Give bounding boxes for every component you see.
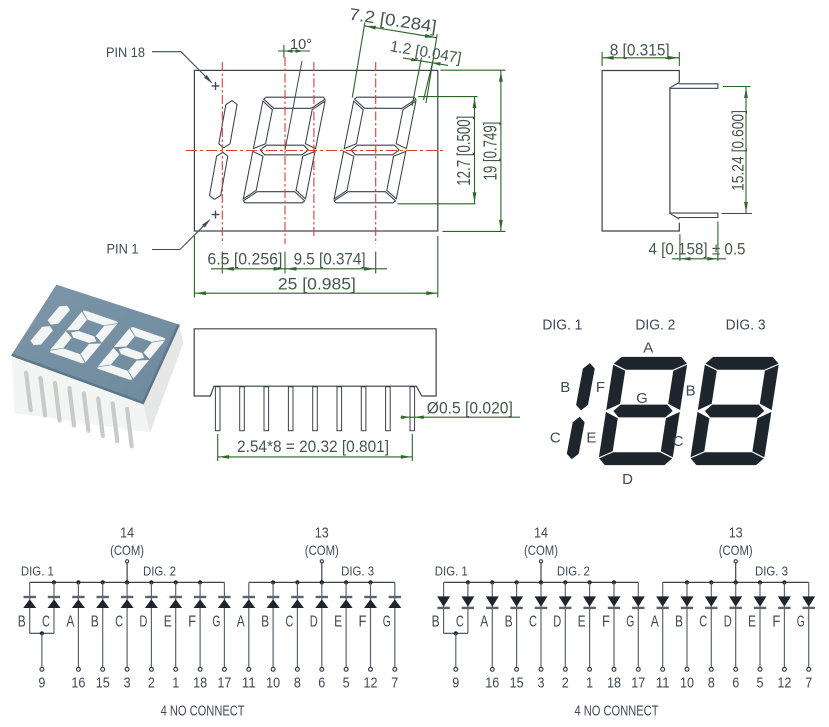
svg-text:11: 11	[656, 675, 670, 692]
svg-text:G: G	[797, 614, 805, 631]
svg-text:2: 2	[148, 675, 155, 692]
svg-text:C: C	[550, 430, 561, 447]
svg-text:6: 6	[732, 675, 739, 692]
svg-text:7: 7	[805, 675, 812, 692]
svg-text:5: 5	[757, 675, 764, 692]
svg-text:14: 14	[120, 526, 134, 542]
svg-text:8: 8	[294, 675, 301, 692]
svg-text:B: B	[18, 614, 26, 631]
svg-text:Ø0.5 [0.020]: Ø0.5 [0.020]	[427, 400, 513, 418]
svg-text:DIG. 1: DIG. 1	[435, 564, 468, 579]
svg-text:E: E	[748, 614, 756, 631]
svg-text:14: 14	[534, 526, 548, 542]
svg-text:17: 17	[217, 675, 231, 692]
svg-text:4 [0.158] ± 0.5: 4 [0.158] ± 0.5	[649, 241, 746, 259]
svg-text:2.54*8 = 20.32 [0.801]: 2.54*8 = 20.32 [0.801]	[237, 438, 389, 456]
svg-text:A: A	[66, 614, 75, 631]
svg-text:F: F	[602, 614, 610, 631]
svg-text:17: 17	[631, 675, 645, 692]
svg-text:7.2 [0.284]: 7.2 [0.284]	[348, 5, 438, 37]
svg-text:18: 18	[607, 675, 621, 692]
svg-text:B: B	[505, 614, 513, 631]
svg-text:3: 3	[124, 675, 131, 692]
svg-text:B: B	[432, 614, 440, 631]
svg-text:4 NO CONNECT: 4 NO CONNECT	[575, 704, 659, 720]
svg-text:19 [0.749]: 19 [0.749]	[480, 122, 500, 181]
svg-text:8 [0.315]: 8 [0.315]	[610, 41, 670, 59]
svg-text:B: B	[675, 614, 683, 631]
svg-text:DIG. 1: DIG. 1	[21, 564, 54, 579]
svg-text:F: F	[596, 379, 605, 396]
svg-text:F: F	[359, 614, 367, 631]
svg-text:A: A	[651, 614, 660, 631]
svg-text:C: C	[285, 614, 293, 631]
svg-text:(COM): (COM)	[524, 542, 558, 558]
svg-text:C: C	[699, 614, 707, 631]
svg-text:10: 10	[680, 675, 694, 692]
svg-text:PIN 18: PIN 18	[106, 45, 145, 60]
svg-text:C: C	[529, 614, 537, 631]
svg-text:DIG. 3: DIG. 3	[755, 564, 788, 579]
svg-text:(COM): (COM)	[719, 542, 753, 558]
svg-text:A: A	[643, 339, 653, 356]
svg-text:8: 8	[708, 675, 715, 692]
svg-text:E: E	[578, 614, 586, 631]
svg-text:15: 15	[96, 675, 110, 692]
svg-text:D: D	[139, 614, 147, 631]
svg-text:G: G	[383, 614, 391, 631]
svg-text:A: A	[480, 614, 489, 631]
svg-text:18: 18	[193, 675, 207, 692]
svg-text:DIG. 2: DIG. 2	[143, 564, 176, 579]
svg-text:D: D	[622, 471, 633, 488]
svg-text:(COM): (COM)	[305, 542, 339, 558]
svg-text:5: 5	[343, 675, 350, 692]
svg-text:12.7 [0.500]: 12.7 [0.500]	[454, 116, 474, 186]
svg-text:3: 3	[538, 675, 545, 692]
svg-text:C: C	[456, 614, 464, 631]
svg-text:C: C	[42, 614, 50, 631]
svg-text:6: 6	[318, 675, 325, 692]
svg-text:16: 16	[71, 675, 85, 692]
svg-text:1.2 [0.047]: 1.2 [0.047]	[389, 38, 463, 67]
svg-text:10: 10	[266, 675, 280, 692]
svg-text:9: 9	[452, 675, 459, 692]
svg-text:D: D	[724, 614, 732, 631]
svg-text:C: C	[115, 614, 123, 631]
svg-text:D: D	[310, 614, 318, 631]
svg-text:E: E	[586, 430, 596, 447]
svg-text:15: 15	[510, 675, 524, 692]
svg-text:13: 13	[315, 526, 329, 542]
svg-text:C: C	[673, 433, 684, 450]
svg-text:12: 12	[364, 675, 378, 692]
svg-text:(COM): (COM)	[110, 542, 144, 558]
svg-text:B: B	[261, 614, 269, 631]
svg-text:E: E	[334, 614, 342, 631]
svg-text:12: 12	[777, 675, 791, 692]
svg-text:11: 11	[242, 675, 256, 692]
svg-text:1: 1	[586, 675, 593, 692]
svg-text:F: F	[188, 614, 196, 631]
svg-text:6.5 [0.256]: 6.5 [0.256]	[207, 250, 282, 268]
svg-text:F: F	[772, 614, 780, 631]
svg-text:25 [0.985]: 25 [0.985]	[278, 275, 356, 293]
svg-text:A: A	[237, 614, 246, 631]
svg-text:G: G	[212, 614, 220, 631]
svg-text:2: 2	[562, 675, 569, 692]
svg-text:DIG. 1: DIG. 1	[542, 317, 582, 334]
svg-text:DIG. 3: DIG. 3	[341, 564, 374, 579]
svg-text:4 NO CONNECT: 4 NO CONNECT	[161, 704, 245, 720]
svg-text:B: B	[686, 383, 696, 400]
svg-text:B: B	[560, 379, 570, 396]
svg-text:9.5 [0.374]: 9.5 [0.374]	[294, 250, 366, 268]
svg-text:DIG. 3: DIG. 3	[726, 317, 766, 334]
svg-text:DIG. 2: DIG. 2	[557, 564, 590, 579]
svg-text:D: D	[553, 614, 561, 631]
svg-text:G: G	[626, 614, 634, 631]
svg-text:15.24 [0.600]: 15.24 [0.600]	[729, 110, 748, 191]
svg-text:13: 13	[729, 526, 743, 542]
svg-text:1: 1	[172, 675, 179, 692]
svg-text:9: 9	[38, 675, 45, 692]
svg-text:G: G	[636, 390, 648, 407]
svg-text:16: 16	[485, 675, 499, 692]
svg-text:PIN 1: PIN 1	[107, 242, 139, 257]
svg-text:7: 7	[391, 675, 398, 692]
svg-text:E: E	[164, 614, 172, 631]
svg-text:DIG. 2: DIG. 2	[635, 317, 675, 334]
svg-text:B: B	[91, 614, 99, 631]
